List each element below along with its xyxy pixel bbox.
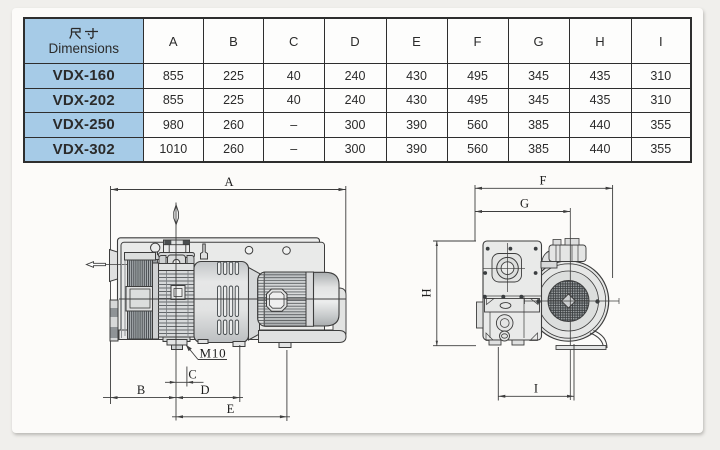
- svg-text:F: F: [540, 174, 547, 188]
- svg-text:M10: M10: [200, 346, 227, 361]
- svg-text:G: G: [520, 197, 529, 211]
- svg-text:H: H: [420, 288, 434, 297]
- svg-text:C: C: [188, 368, 196, 382]
- svg-text:B: B: [137, 383, 145, 397]
- svg-text:E: E: [227, 402, 235, 416]
- svg-text:A: A: [224, 175, 233, 189]
- svg-text:I: I: [534, 382, 538, 396]
- svg-text:D: D: [200, 383, 209, 397]
